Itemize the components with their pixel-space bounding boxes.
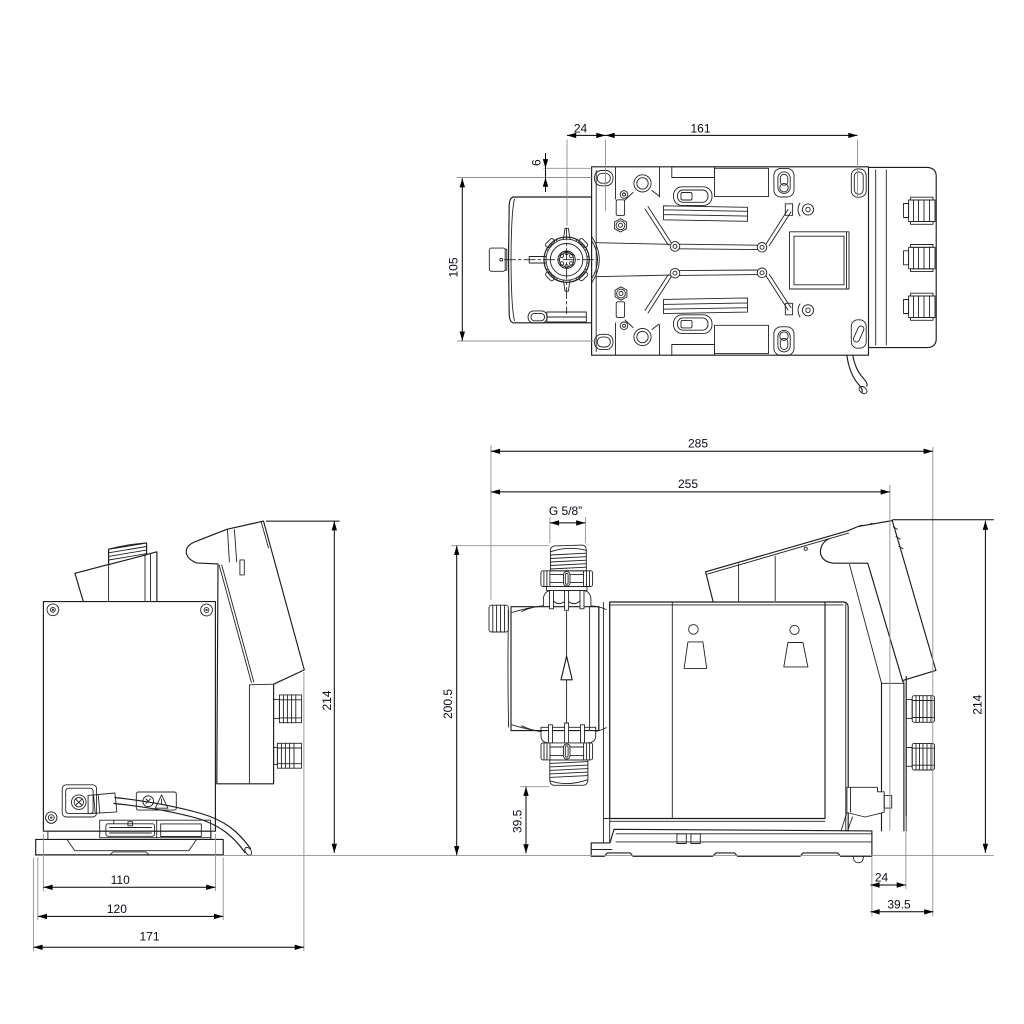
- svg-text:161: 161: [690, 122, 710, 136]
- svg-text:120: 120: [107, 902, 127, 916]
- svg-text:200.5: 200.5: [441, 689, 455, 719]
- svg-text:6: 6: [530, 159, 544, 166]
- svg-text:G 5/8”: G 5/8”: [549, 504, 582, 518]
- svg-text:285: 285: [688, 437, 708, 451]
- svg-text:255: 255: [678, 477, 698, 491]
- svg-text:171: 171: [139, 930, 159, 944]
- svg-text:110: 110: [111, 873, 130, 887]
- svg-text:24: 24: [875, 870, 889, 884]
- svg-text:39.5: 39.5: [511, 809, 525, 833]
- svg-text:214: 214: [971, 694, 985, 714]
- svg-text:105: 105: [447, 257, 461, 277]
- svg-text:214: 214: [320, 690, 334, 710]
- svg-text:24: 24: [574, 122, 588, 136]
- svg-text:39.5: 39.5: [887, 897, 911, 911]
